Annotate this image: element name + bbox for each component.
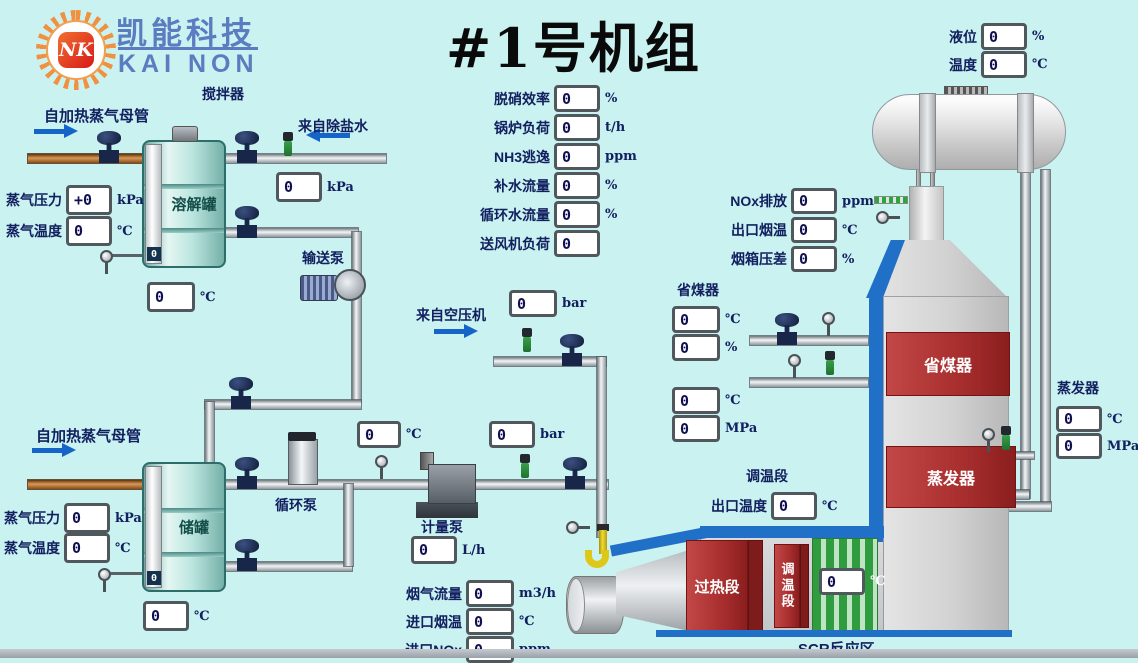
gauge-outlet-flue-temp: 出口烟温0℃: [699, 217, 858, 243]
gauge-label: 补水流量: [462, 176, 550, 196]
superheat-block-side: [748, 540, 763, 632]
circulation-pump-icon[interactable]: [285, 432, 319, 490]
superheat-block: 过热段: [686, 540, 748, 632]
pipe: [1041, 170, 1050, 510]
gauge-unit: %: [605, 207, 617, 222]
pipe: [28, 154, 146, 163]
gauge-unit: ℃: [725, 312, 741, 327]
transfer-pump-icon[interactable]: [300, 266, 372, 306]
gauge-unit: ℃: [842, 223, 858, 238]
filter-sensor-icon: [521, 328, 533, 354]
gauge-unit: ℃: [822, 499, 838, 514]
gauge-evap-pressure: 0MPa: [1056, 433, 1138, 459]
gauge-denox-efficiency: 脱硝效率0%: [462, 85, 617, 112]
chimney: [909, 186, 944, 244]
gauge-fan-load: 送风机负荷0: [462, 230, 605, 257]
gauge-steam-pressure-1: 蒸气压力+0kPa: [0, 185, 144, 215]
gauge-value: 0: [554, 230, 600, 257]
gauge-value: +0: [66, 185, 112, 215]
filter-sensor-icon: [282, 132, 294, 158]
block-label: 省煤器: [924, 352, 972, 376]
gauge-value: 0: [64, 533, 110, 563]
pipe: [494, 357, 606, 366]
gauge-unit: %: [842, 252, 854, 267]
gauge-value: 0: [554, 172, 600, 199]
gauge-unit: ℃: [117, 224, 133, 239]
gauge-unit: ℃: [406, 427, 422, 442]
steam-drum: [872, 94, 1066, 170]
gauge-label: 脱硝效率: [462, 89, 550, 109]
gauge-unit: ℃: [1107, 412, 1123, 427]
metering-pump-label: 计量泵: [421, 517, 463, 537]
gauge-nh3-slip: NH3逃逸0ppm: [462, 143, 637, 170]
gauge-label: 烟气流量: [374, 584, 462, 604]
gauge-unit: ℃: [115, 541, 131, 556]
gauge-value: 0: [819, 568, 865, 595]
gauge-tempering-outlet-temp: 出口温度0℃: [679, 492, 838, 520]
gauge-makeup-water-flow: 补水流量0%: [462, 172, 617, 199]
sensor-icon: [822, 312, 835, 325]
gauge-label: 进口烟温: [374, 612, 462, 632]
gauge-evap-temp: 0℃: [1056, 406, 1123, 432]
gauge-value: 0: [554, 85, 600, 112]
gauge-label: 蒸气压力: [0, 190, 62, 210]
control-valve-icon[interactable]: [234, 457, 260, 489]
gauge-value: 0: [64, 503, 110, 533]
gauge-unit: ℃: [870, 574, 886, 589]
gauge-label: 锅炉负荷: [462, 118, 550, 138]
gauge-eco-temp-a: 0℃: [672, 306, 741, 333]
gauge-eco-temp-b: 0℃: [672, 387, 741, 414]
gauge-unit: %: [1032, 29, 1044, 44]
control-valve-icon[interactable]: [234, 539, 260, 571]
tempering-section-label: 调温段: [746, 466, 788, 486]
nox-analyzer-icon: [876, 211, 889, 224]
gauge-value: 0: [1056, 406, 1102, 432]
block-label: 过热段: [694, 576, 739, 597]
storage-tank: 0 储罐: [142, 462, 226, 592]
tower-economizer-block: 省煤器: [886, 332, 1010, 396]
gauge-label: 蒸气压力: [0, 508, 60, 528]
pipe: [344, 484, 353, 566]
block-label: 蒸发器: [927, 465, 975, 489]
gauge-line-pressure: 0bar: [489, 421, 564, 448]
gauge-value: 0: [791, 217, 837, 243]
gauge-unit: kPa: [115, 511, 142, 526]
flow-arrow-right-icon: [434, 324, 478, 338]
gauge-value: 0: [554, 114, 600, 141]
metering-pump-icon[interactable]: [416, 452, 478, 518]
tower-blue-edge: [869, 296, 883, 542]
gauge-unit: ppm: [842, 194, 874, 209]
gauge-value: 0: [509, 290, 557, 317]
air-compressor-label: 来自空压机: [416, 305, 486, 325]
gauge-value: 0: [66, 216, 112, 246]
logo-monogram: NK: [58, 32, 94, 68]
gauge-value: 0: [791, 188, 837, 214]
gauge-unit: MPa: [725, 421, 757, 436]
transfer-pump-label: 输送泵: [302, 248, 344, 268]
flow-arrow-right-icon: [34, 124, 78, 138]
gauge-value: 0: [554, 143, 600, 170]
company-name-en: KAI NON: [118, 50, 259, 79]
gauge-value: 0: [981, 51, 1027, 78]
gauge-drum-level: 液位0%: [889, 23, 1044, 50]
window-bottom-edge: [0, 649, 1138, 658]
dissolve-tank: 0 溶解罐: [142, 140, 226, 268]
analyzer-led-strip-icon: [874, 196, 908, 204]
gauge-metering-flow: 0L/h: [411, 536, 485, 564]
gauge-value: 0: [411, 536, 457, 564]
gauge-value: 0: [143, 601, 189, 631]
pipe: [750, 336, 868, 345]
sensor-icon: [566, 521, 579, 534]
circulation-pump-label: 循环泵: [275, 495, 317, 515]
pipe: [750, 378, 868, 387]
gauge-steam-pressure-2: 蒸气压力0kPa: [0, 503, 142, 533]
pipe: [597, 357, 606, 537]
steam-header-bottom-label: 自加热蒸气母管: [36, 425, 141, 446]
gauge-unit: %: [605, 178, 617, 193]
gauge-value: 0: [554, 201, 600, 228]
sensor-icon: [788, 354, 801, 367]
economizer-group-label: 省煤器: [677, 280, 719, 300]
sensor-icon: [982, 428, 995, 441]
gauge-unit: ppm: [605, 149, 637, 164]
gauge-steam-temp-1: 蒸气温度0℃: [0, 216, 133, 246]
gauge-label: 液位: [889, 27, 977, 47]
tempering-block: 调温段: [774, 544, 800, 628]
gauge-value: 0: [981, 23, 1027, 50]
gauge-line-temp: 0℃: [357, 421, 422, 448]
level-gauge: [145, 466, 162, 588]
gauge-unit: m3/h: [519, 586, 556, 601]
mixer-label: 搅拌器: [202, 84, 244, 104]
gauge-unit: MPa: [1107, 439, 1138, 454]
filter-sensor-icon: [519, 454, 531, 480]
tank-label: 溶解罐: [162, 194, 226, 215]
gauge-value: 0: [672, 387, 720, 414]
gauge-label: 烟箱压差: [699, 249, 787, 269]
gauge-inlet-flue-temp: 进口烟温0℃: [374, 608, 535, 635]
drum-saddle: [919, 93, 936, 173]
gauge-label: 蒸气温度: [0, 538, 60, 558]
drum-saddle: [1017, 93, 1034, 173]
gauge-value: 0: [147, 282, 195, 312]
gauge-unit: kPa: [117, 193, 144, 208]
gauge-label: 循环水流量: [462, 205, 550, 225]
gauge-value: 0: [672, 306, 720, 333]
gauge-label: 出口烟温: [699, 220, 787, 240]
pipe: [1021, 170, 1030, 498]
tank-label: 储罐: [162, 517, 226, 538]
gauge-label: NOx排放: [699, 191, 787, 211]
tank-level-readout: 0: [147, 247, 161, 261]
evaporator-group-label: 蒸发器: [1057, 378, 1099, 398]
gauge-dissolve-tank-temp: 0℃: [147, 282, 216, 312]
control-valve-icon[interactable]: [559, 334, 585, 366]
gauge-circ-water-flow: 循环水流量0%: [462, 201, 617, 228]
gauge-label: 出口温度: [679, 496, 767, 516]
control-valve-icon[interactable]: [234, 131, 260, 163]
gauge-unit: ℃: [1032, 57, 1048, 72]
gauge-label: 蒸气温度: [0, 221, 62, 241]
gauge-unit: bar: [540, 427, 564, 442]
filter-sensor-icon: [1000, 426, 1012, 452]
tower-evaporator-block: 蒸发器: [886, 446, 1016, 508]
gauge-flue-gas-flow: 烟气流量0m3/h: [374, 580, 556, 607]
pipe: [352, 232, 361, 402]
gauge-unit: ℃: [725, 393, 741, 408]
control-valve-icon[interactable]: [96, 131, 122, 163]
gauge-unit: t/h: [605, 120, 625, 135]
gauge-unit: L/h: [462, 543, 485, 558]
gauge-boiler-load: 锅炉负荷0t/h: [462, 114, 625, 141]
gauge-unit: %: [725, 340, 737, 355]
tower-top: [866, 240, 1012, 298]
sensor-icon: [100, 250, 113, 263]
ammonia-injector-icon: [584, 524, 618, 586]
duct-blue-bottom: [656, 630, 1012, 637]
gauge-value: 0: [276, 172, 322, 202]
gauge-value: 0: [489, 421, 535, 448]
steam-header-top-label: 自加热蒸气母管: [44, 105, 149, 126]
filter-sensor-icon: [824, 351, 836, 377]
desalted-water-label: 来自除盐水: [298, 116, 368, 136]
control-valve-icon[interactable]: [234, 206, 260, 238]
control-valve-icon[interactable]: [228, 377, 254, 409]
gauge-value: 0: [1056, 433, 1102, 459]
sensor-icon: [375, 455, 388, 468]
gauge-unit: kPa: [327, 180, 354, 195]
pipe: [28, 480, 146, 489]
gauge-unit: ℃: [200, 290, 216, 305]
gauge-value: 0: [672, 415, 720, 442]
gauge-eco-pressure: 0MPa: [672, 415, 757, 442]
gauge-storage-tank-temp: 0℃: [143, 601, 210, 631]
gauge-value: 0: [771, 492, 817, 520]
gauge-value: 0: [357, 421, 401, 448]
gauge-nox-emission: NOx排放0ppm: [699, 188, 874, 214]
gauge-unit: ℃: [519, 614, 535, 629]
gauge-value: 0: [466, 608, 514, 635]
control-valve-icon[interactable]: [774, 313, 800, 345]
gauge-unit: bar: [562, 296, 586, 311]
gauge-steam-temp-2: 蒸气温度0℃: [0, 533, 131, 563]
duct-blue-top: [700, 526, 884, 538]
gauge-value: 0: [791, 246, 837, 272]
gauge-label: 温度: [889, 55, 977, 75]
gauge-scr-temp: 0℃: [819, 568, 886, 595]
control-valve-icon[interactable]: [562, 457, 588, 489]
instrument-line: [106, 572, 142, 575]
instrument-line: [108, 254, 144, 257]
block-label: 调温段: [778, 562, 797, 610]
gauge-unit: ℃: [194, 609, 210, 624]
gauge-air-pressure: 0bar: [509, 290, 586, 317]
mixer-motor-icon: [172, 126, 198, 142]
gauge-value: 0: [466, 580, 514, 607]
level-gauge: [145, 144, 162, 264]
tank-level-readout: 0: [147, 571, 161, 585]
gauge-desalt-water-pressure: 0kPa: [276, 172, 354, 202]
sensor-icon: [98, 568, 111, 581]
page-title: #1号机组: [446, 4, 701, 83]
gauge-label: 送风机负荷: [462, 234, 550, 254]
tempering-block-side: [800, 544, 809, 628]
gauge-value: 0: [672, 334, 720, 361]
gauge-unit: %: [605, 91, 617, 106]
gauge-label: NH3逃逸: [462, 147, 550, 167]
gauge-eco-pct: 0%: [672, 334, 737, 361]
gauge-windbox-dp: 烟箱压差0%: [699, 246, 854, 272]
gauge-drum-temp: 温度0℃: [889, 51, 1048, 78]
company-logo-icon: NK: [36, 10, 116, 90]
